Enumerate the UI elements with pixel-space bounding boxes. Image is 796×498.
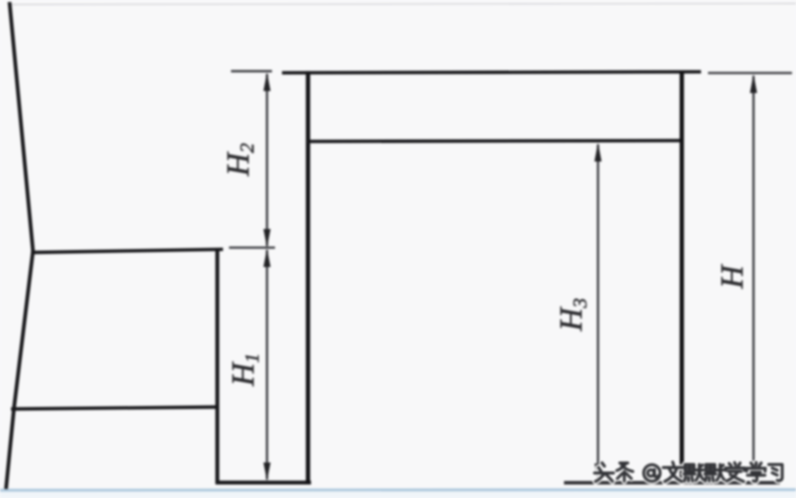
svg-text:H: H xyxy=(713,264,749,290)
